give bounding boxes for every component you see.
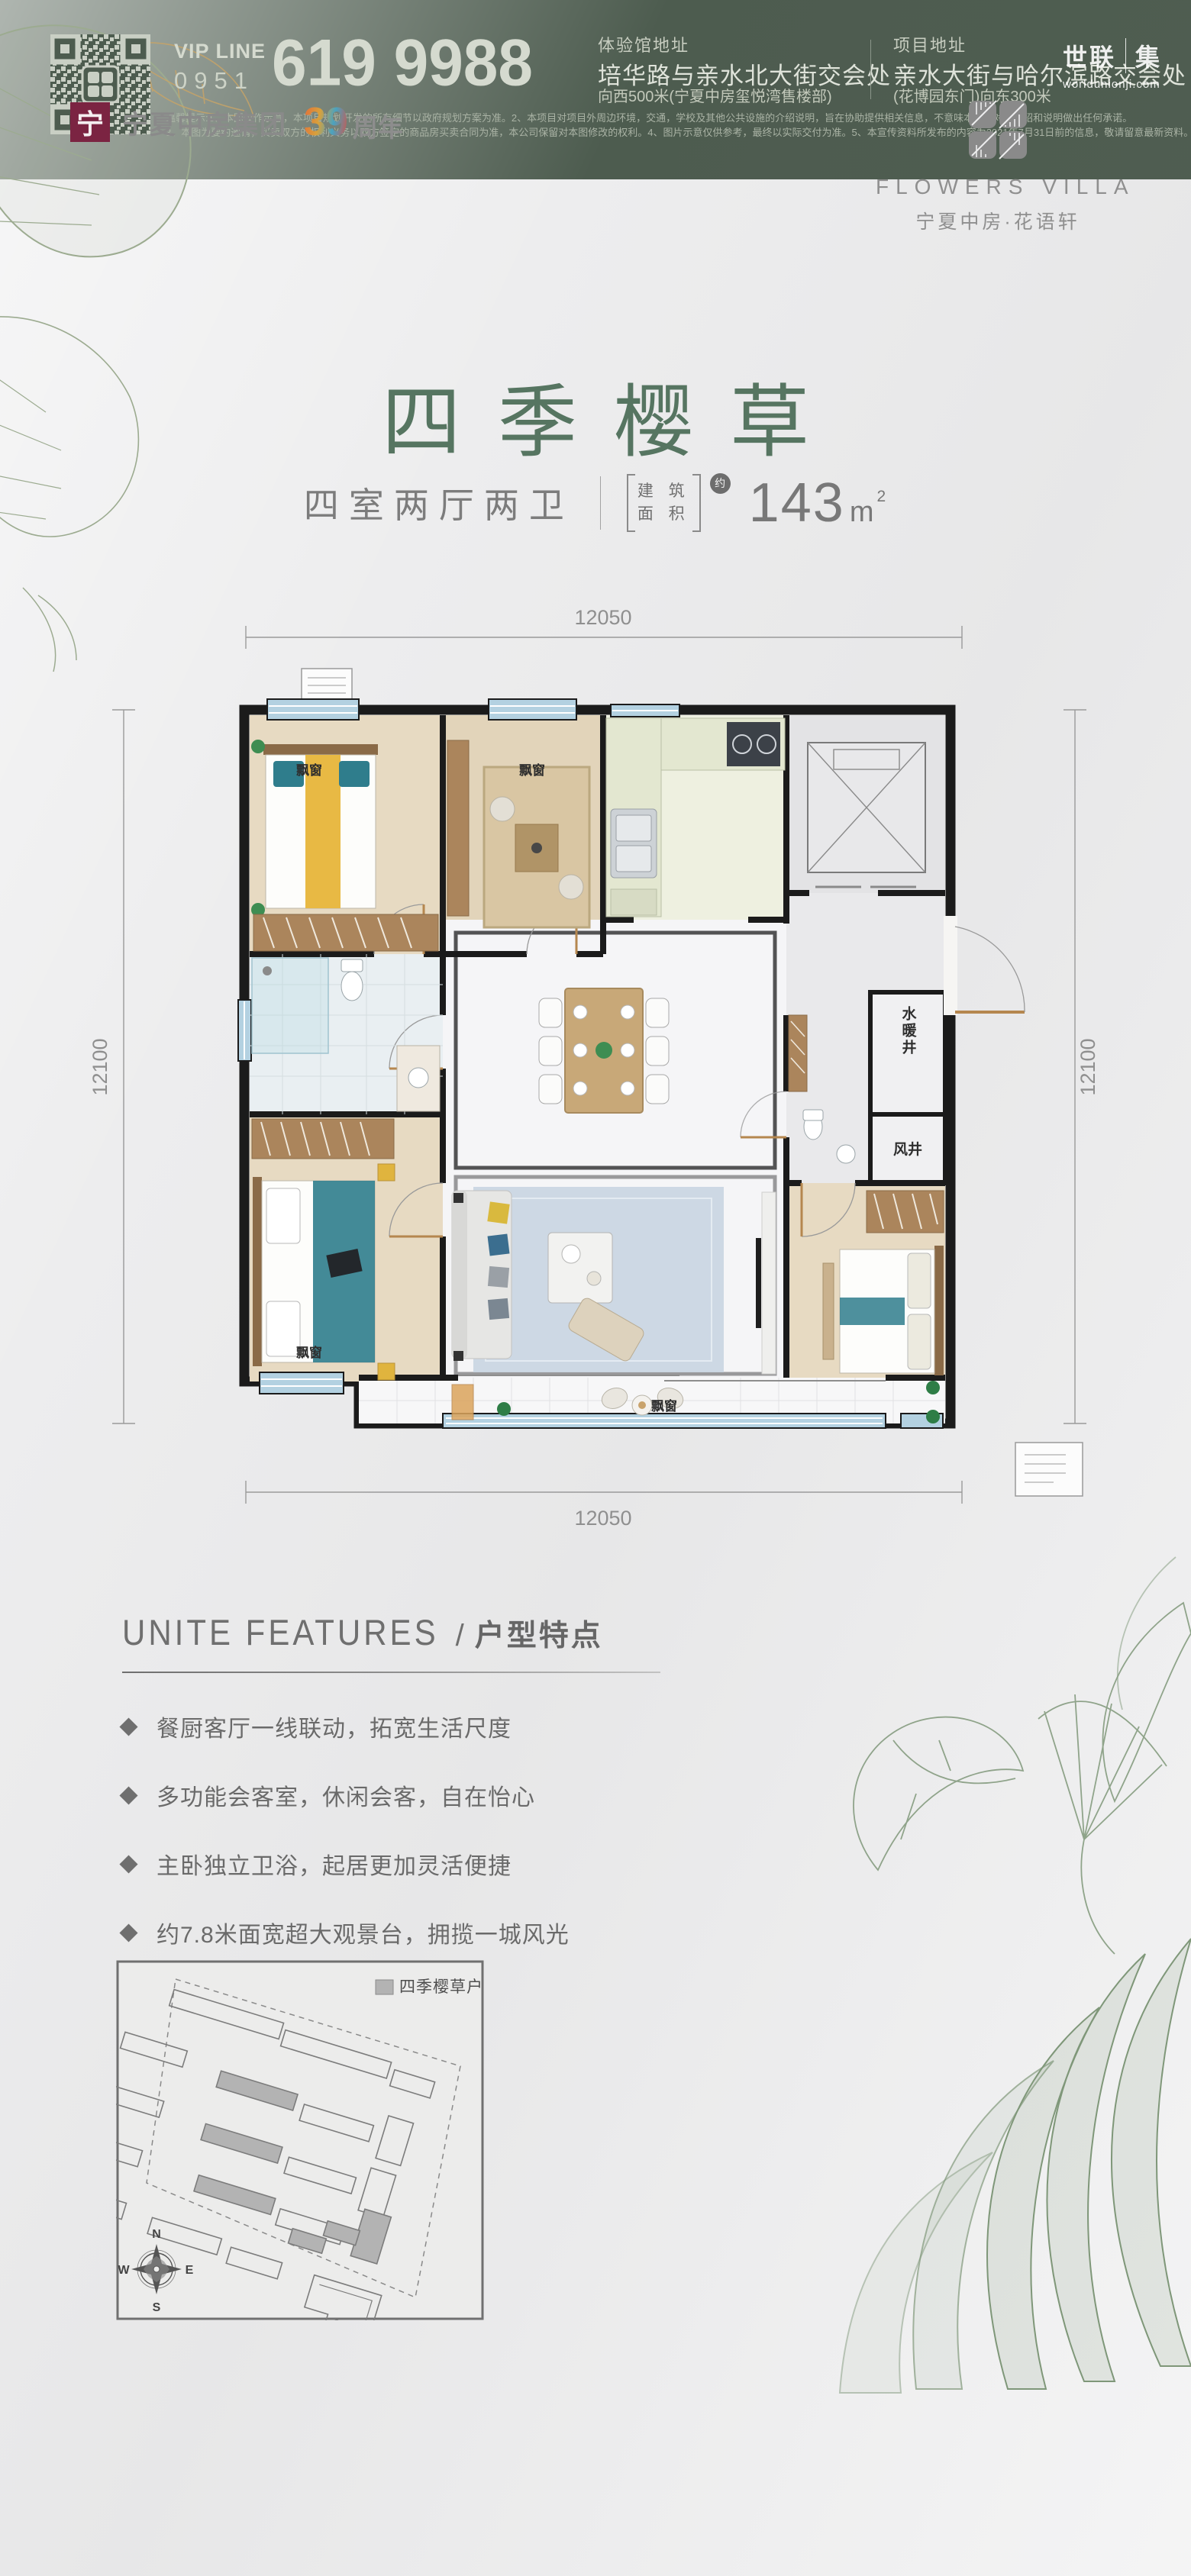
- legend-label: 四季樱草户型: [399, 1978, 484, 1996]
- vip-area-code: 0951: [174, 67, 254, 95]
- project-name-en: FLOWERS VILLA: [876, 175, 1120, 199]
- area-value: 143 m 2: [749, 472, 887, 534]
- project-address-label: 项目地址: [893, 32, 967, 56]
- legend-swatch: [376, 1980, 393, 1994]
- bed2-wardrobe: [252, 1119, 394, 1159]
- window-kitchen: [611, 704, 679, 717]
- dining-plant: [595, 1042, 612, 1059]
- watermark: 世联 集 worldunionji.com: [1063, 38, 1162, 91]
- coffee-table: [548, 1233, 612, 1303]
- feature-text-2: 多功能会客室，休闲会客，自在怡心: [157, 1778, 535, 1812]
- feature-text-1: 餐厨客厅一线联动，拓宽生活尺度: [157, 1710, 512, 1743]
- bedroom2-furniture: [252, 1119, 395, 1380]
- features-title: UNITE FEATURES / 户型特点: [122, 1612, 702, 1655]
- watermark-url: worldunionji.com: [1063, 78, 1162, 91]
- vip-line-label: VIP LINE: [174, 40, 266, 63]
- elevator-shaft: [808, 743, 925, 887]
- window-bath: [238, 1000, 251, 1061]
- area-label-bracket: 建 筑 面 积: [627, 474, 701, 532]
- label-air-shaft: 风井: [893, 1141, 922, 1158]
- page-title: 四季樱草: [0, 357, 1191, 472]
- features-title-en: UNITE FEATURES: [122, 1612, 439, 1653]
- master-runner: [840, 1298, 905, 1325]
- feature-text-4: 约7.8米面宽超大观景台，拥揽一城风光: [157, 1916, 570, 1949]
- bed-bench: [823, 1263, 834, 1359]
- bay-window-bed1: [267, 699, 359, 720]
- hero-subtitle: 四室两厅两卫 建 筑 面 积 约 143 m 2: [0, 472, 1191, 534]
- label-bay-window-1: 飘窗: [296, 762, 322, 778]
- kitchen-cabinet: [611, 889, 657, 915]
- diamond-bullet-icon: [119, 1717, 137, 1736]
- leaves-bottomright-decoration: [687, 1511, 1191, 2397]
- bed1-runner: [305, 755, 341, 908]
- vip-phone-number[interactable]: 619 9988: [272, 26, 533, 102]
- subtitle-divider: [600, 476, 601, 530]
- compass-n: N: [152, 2228, 161, 2241]
- feature-item: 餐厨客厅一线联动，拓宽生活尺度: [122, 1710, 702, 1743]
- brand-header: 宁 宁夏中房集团 39 周年: [70, 102, 403, 142]
- area-block: 建 筑 面 积 约 143 m 2: [627, 472, 887, 534]
- diamond-bullet-icon: [119, 1786, 137, 1804]
- dim-bottom: 12050: [574, 1507, 631, 1530]
- anniversary-label: 周年: [353, 114, 403, 142]
- label-bay-window-3: 飘窗: [296, 1345, 322, 1360]
- label-bay-window-2: 飘窗: [519, 762, 545, 778]
- features-title-separator: /: [456, 1619, 464, 1653]
- feature-text-3: 主卧独立卫浴，起居更加灵活便捷: [157, 1847, 512, 1881]
- compass-w: W: [118, 2264, 130, 2277]
- siteplan: 四季樱草户型 N S W E: [116, 1960, 484, 2320]
- bay-window-bed2: [260, 1372, 344, 1394]
- tv-cabinet: [762, 1192, 776, 1374]
- brand-logo-icon: 宁: [70, 102, 110, 142]
- feature-item: 多功能会客室，休闲会客，自在怡心: [122, 1778, 702, 1812]
- anniversary-badge: 39 周年: [304, 102, 403, 142]
- area-superscript: 2: [876, 488, 887, 506]
- diamond-bullet-icon: [119, 1923, 137, 1942]
- compass-s: S: [153, 2301, 161, 2314]
- feature-item: 主卧独立卫浴，起居更加灵活便捷: [122, 1847, 702, 1881]
- brand-name: 宁夏中房集团: [122, 104, 287, 141]
- washbasin: [408, 1068, 428, 1088]
- dim-right: 12100: [1076, 1038, 1099, 1095]
- anniversary-number: 39: [304, 102, 348, 142]
- features-section: UNITE FEATURES / 户型特点 餐厨客厅一线联动，拓宽生活尺度 多功…: [122, 1612, 702, 1984]
- dim-left: 12100: [89, 1038, 111, 1095]
- watermark-text-2: 集: [1135, 38, 1162, 73]
- area-number: 143: [749, 472, 845, 534]
- area-label-line1: 建 筑: [637, 480, 690, 503]
- hall-cabinet: [789, 1015, 807, 1091]
- watermark-divider: [1125, 38, 1126, 73]
- kitchen-stove: [727, 722, 780, 766]
- toilet: [341, 972, 363, 1001]
- layout-text: 四室两厅两卫: [304, 478, 574, 528]
- approx-badge: 约: [710, 473, 731, 494]
- area-label-line2: 面 积: [637, 503, 690, 526]
- diamond-bullet-icon: [119, 1855, 137, 1873]
- experience-hall-detail: 向西500米(宁夏中房玺悦湾售楼部): [598, 84, 832, 106]
- project-name-cn: 宁夏中房·花语轩: [876, 207, 1120, 234]
- experience-hall-label: 体验馆地址: [598, 32, 689, 56]
- window-balcony: [443, 1414, 943, 1428]
- features-title-cn: 户型特点: [475, 1612, 603, 1655]
- flower-mark-icon: [967, 99, 1028, 160]
- feature-item: 约7.8米面宽超大观景台，拥揽一城风光: [122, 1916, 702, 1949]
- features-list: 餐厨客厅一线联动，拓宽生活尺度 多功能会客室，休闲会客，自在怡心 主卧独立卫浴，…: [122, 1710, 702, 1949]
- label-bay-window-4: 飘窗: [651, 1398, 677, 1414]
- features-underline: [122, 1672, 660, 1673]
- entry-door: [944, 916, 1025, 1015]
- floorplan: 12050 12050 12100 12100: [76, 588, 1115, 1542]
- tv: [756, 1238, 761, 1328]
- dining-furniture: [539, 988, 669, 1113]
- label-water-shaft: 水暖井: [900, 1006, 917, 1056]
- dim-top: 12050: [574, 606, 631, 629]
- watermark-text-1: 世联: [1063, 38, 1116, 73]
- footer-address-divider: [870, 40, 871, 99]
- project-logo-block: FLOWERS VILLA 宁夏中房·花语轩: [876, 99, 1120, 234]
- bay-window-multi: [489, 699, 576, 720]
- compass-e: E: [186, 2264, 194, 2277]
- area-unit: m: [850, 496, 876, 529]
- ac-platform-bottom: [1015, 1443, 1083, 1496]
- multifunction-furniture: [447, 740, 589, 927]
